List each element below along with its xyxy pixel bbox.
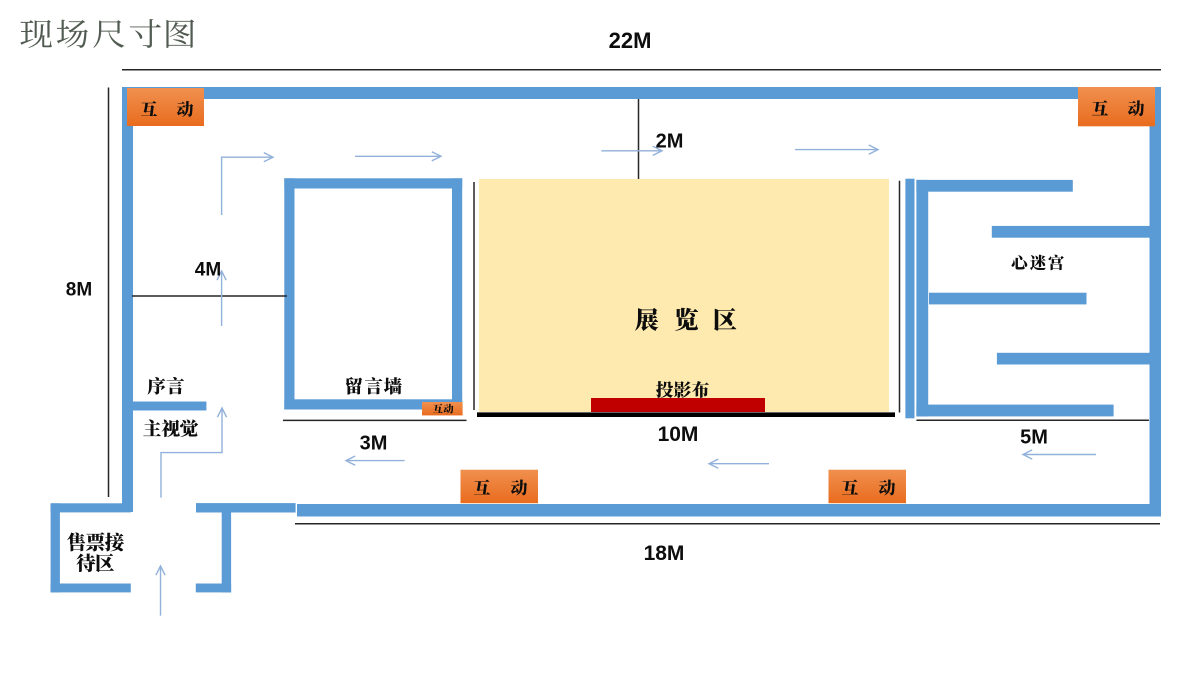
svg-text:4M: 4M [195, 260, 221, 281]
svg-text:10M: 10M [658, 423, 699, 446]
svg-text:5M: 5M [1020, 427, 1048, 449]
svg-text:18M: 18M [644, 542, 685, 565]
svg-text:22M: 22M [609, 28, 652, 53]
svg-text:8M: 8M [66, 280, 92, 301]
svg-text:2M: 2M [656, 131, 684, 153]
svg-text:3M: 3M [360, 433, 388, 455]
